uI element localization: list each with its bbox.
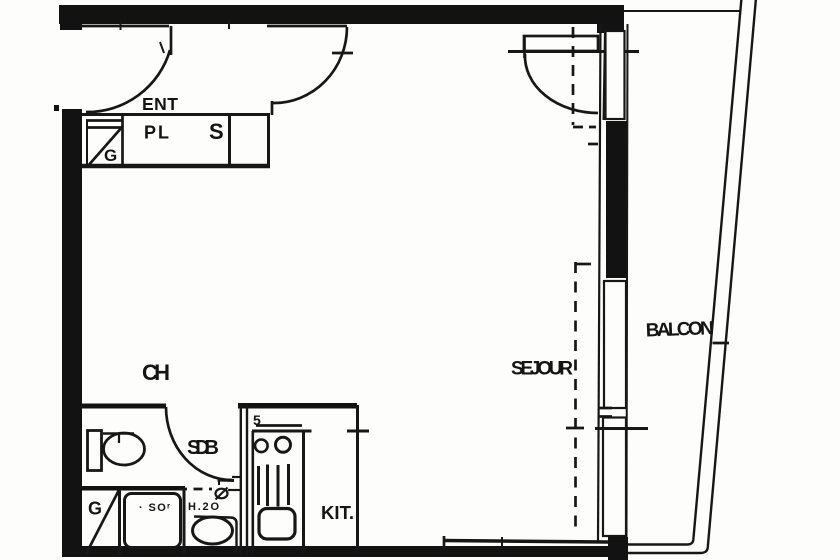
svg-text:KIT.: KIT.	[321, 502, 354, 523]
svg-text:G: G	[88, 499, 102, 519]
svg-text:ENT: ENT	[142, 94, 178, 114]
svg-text:· SOʳ: · SOʳ	[139, 502, 170, 514]
svg-text:SEJOUR: SEJOUR	[511, 359, 573, 380]
svg-text:CH: CH	[142, 360, 170, 385]
svg-text:H.2O: H.2O	[188, 501, 219, 513]
svg-text:SDB: SDB	[187, 437, 219, 459]
svg-text:PL: PL	[144, 123, 171, 143]
svg-text:S: S	[209, 119, 224, 144]
svg-text:G: G	[104, 146, 117, 165]
svg-text:5: 5	[253, 412, 261, 428]
svg-text:BALCON: BALCON	[645, 318, 714, 341]
